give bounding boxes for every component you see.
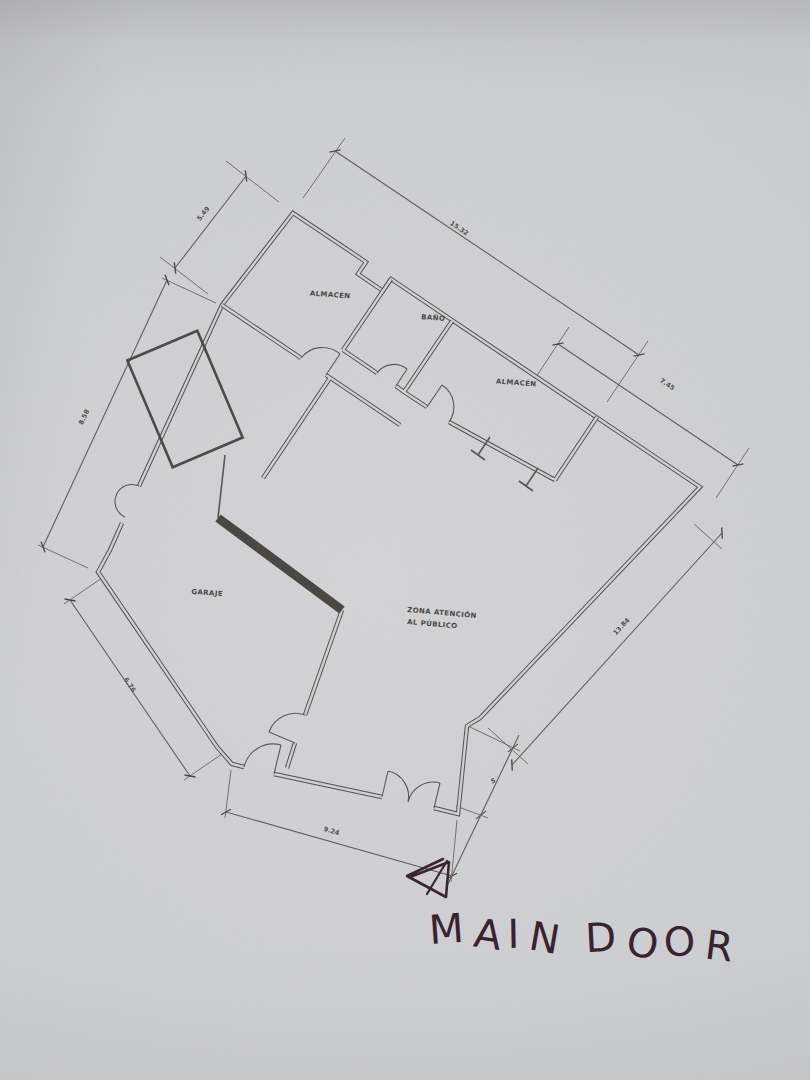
room-label-bano: BAÑO xyxy=(421,312,446,323)
floor-plan-svg: 5.49 15.32 7.45 8.58 6.76 9.24 5 13.84 xyxy=(0,0,810,1080)
paper-photo: 5.49 15.32 7.45 8.58 6.76 9.24 5 13.84 xyxy=(0,0,810,1080)
paper-grain-texture xyxy=(0,0,810,1080)
